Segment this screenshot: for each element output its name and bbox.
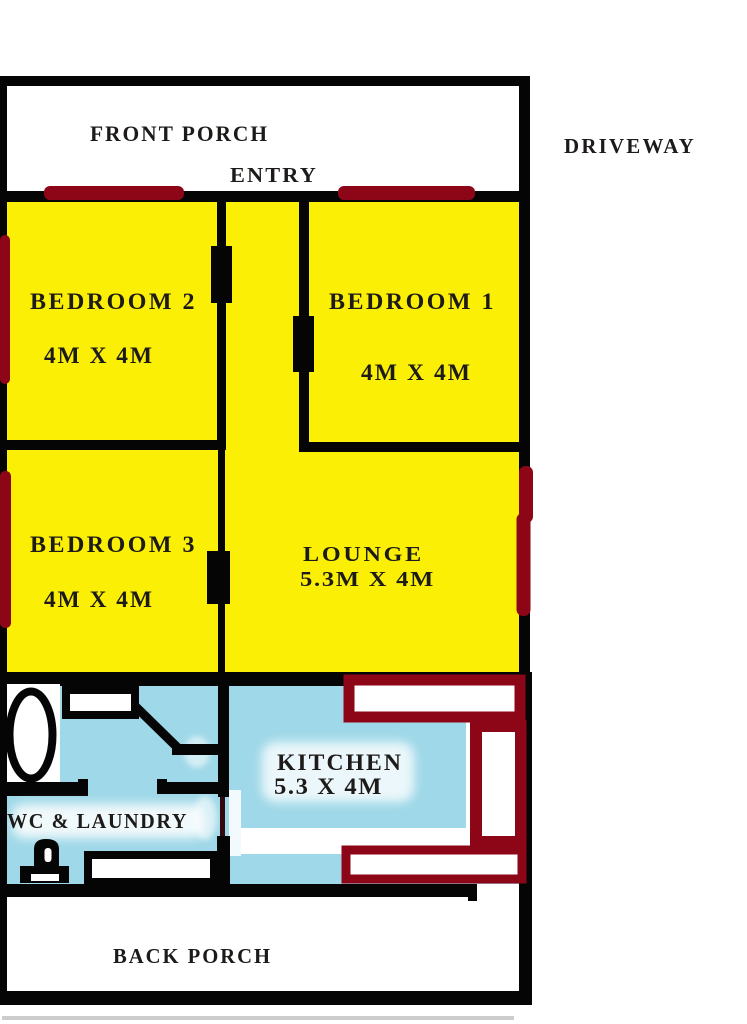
svg-text:LOUNGE: LOUNGE [303, 542, 424, 566]
svg-text:FRONT PORCH: FRONT PORCH [90, 121, 269, 146]
svg-text:4M X 4M: 4M X 4M [44, 587, 154, 612]
svg-text:BEDROOM 3: BEDROOM 3 [30, 532, 197, 557]
svg-text:4M X 4M: 4M X 4M [44, 343, 154, 368]
svg-text:KITCHEN: KITCHEN [277, 750, 403, 775]
svg-text:ENTRY: ENTRY [230, 163, 318, 187]
svg-text:WC & LAUNDRY: WC & LAUNDRY [7, 809, 188, 833]
svg-text:BEDROOM 1: BEDROOM 1 [329, 289, 496, 314]
svg-text:5.3M X 4M: 5.3M X 4M [300, 567, 435, 591]
svg-text:BACK PORCH: BACK PORCH [113, 944, 272, 968]
svg-text:4M X 4M: 4M X 4M [361, 360, 472, 385]
svg-text:BEDROOM 2: BEDROOM 2 [30, 289, 197, 314]
svg-text:5.3 X 4M: 5.3 X 4M [274, 774, 383, 799]
svg-text:DRIVEWAY: DRIVEWAY [564, 134, 696, 158]
